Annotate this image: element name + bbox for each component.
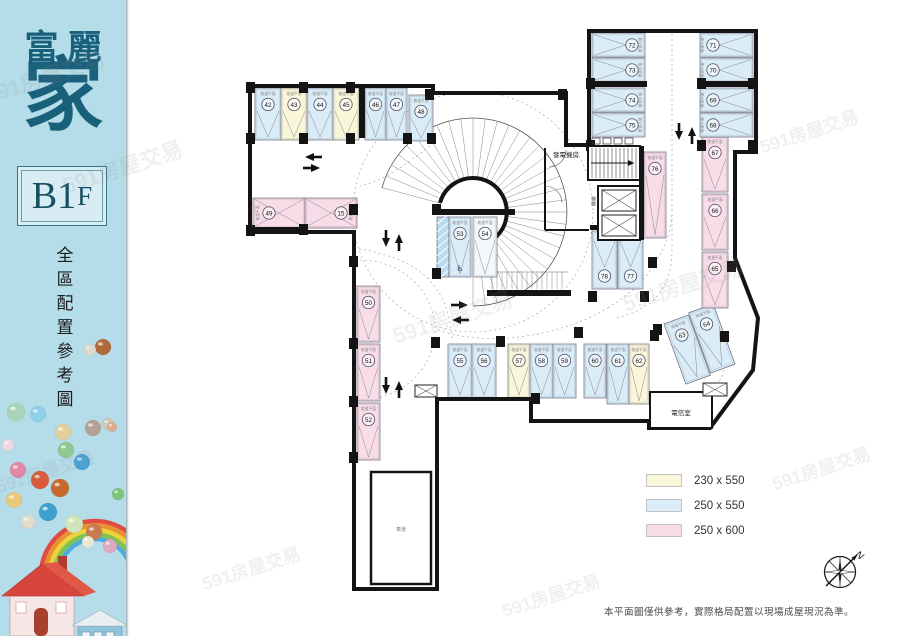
- svg-text:坡道平面: 坡道平面: [557, 347, 572, 352]
- svg-text:坡道平面: 坡道平面: [389, 91, 404, 96]
- svg-text:坡道平面: 坡道平面: [452, 347, 467, 352]
- svg-text:61: 61: [614, 358, 622, 365]
- svg-text:坡道平面: 坡道平面: [361, 347, 376, 352]
- legend-row: 230 x 550: [646, 474, 745, 487]
- svg-text:77: 77: [627, 273, 635, 280]
- svg-text:坡道平面: 坡道平面: [647, 155, 662, 160]
- parking-stall-51: 坡道平面51: [357, 344, 380, 401]
- svg-text:60: 60: [591, 358, 599, 365]
- drive-arrow-u: [688, 127, 696, 144]
- svg-text:66: 66: [711, 208, 719, 215]
- drive-arrow-d: [382, 230, 390, 247]
- parking-stall-49: 49坡道平面: [253, 198, 305, 228]
- svg-text:坡道平面: 坡道平面: [631, 347, 646, 352]
- svg-text:55: 55: [456, 358, 464, 365]
- svg-text:坡道平面: 坡道平面: [638, 62, 643, 77]
- parking-stall-69: 69坡道平面: [700, 88, 754, 112]
- svg-text:56: 56: [480, 358, 488, 365]
- parking-stall-74: 74坡道平面: [592, 88, 645, 112]
- legend-row: 250 x 550: [646, 499, 745, 512]
- drive-arrow-d: [382, 377, 390, 394]
- svg-text:坡道平面: 坡道平面: [511, 347, 526, 352]
- drive-arrow-r: [303, 164, 320, 172]
- parking-stall-73: 73坡道平面: [592, 58, 645, 82]
- parking-stall-70: 70坡道平面: [700, 58, 754, 82]
- ramp-corridor-label: 車道: [396, 526, 406, 533]
- plan-caption: 全區配置參考圖: [51, 246, 76, 416]
- page: 富麗 家 B1 F 全區配置參考圖 坡道平面63坡道平面64坡道平面42坡道平面…: [0, 0, 900, 636]
- svg-text:72: 72: [628, 42, 636, 49]
- svg-text:67: 67: [711, 150, 719, 157]
- floor-number: B1: [32, 174, 76, 218]
- svg-text:48: 48: [417, 109, 425, 116]
- svg-text:44: 44: [316, 102, 324, 109]
- legend-label: 250 x 600: [694, 525, 745, 537]
- svg-text:49: 49: [265, 210, 273, 217]
- svg-text:坡道平面: 坡道平面: [452, 220, 467, 225]
- legend-swatch: [646, 499, 682, 512]
- parking-stall-56: 坡道平面56: [472, 344, 496, 398]
- svg-text:坡道平面: 坡道平面: [610, 347, 625, 352]
- svg-text:坡道平面: 坡道平面: [534, 347, 549, 352]
- svg-text:坡道平面: 坡道平面: [700, 62, 705, 77]
- svg-text:78: 78: [601, 273, 609, 280]
- parking-stall-53: 坡道平面53♿: [449, 217, 471, 277]
- svg-text:坡道平面: 坡道平面: [312, 91, 327, 96]
- svg-text:71: 71: [709, 42, 717, 49]
- drive-arrow-l: [305, 153, 322, 161]
- sidebar: 富麗 家 B1 F 全區配置參考圖: [0, 0, 126, 636]
- parking-stall-52: 坡道平面52: [357, 403, 380, 460]
- parking-stall-75: 75坡道平面: [592, 113, 645, 137]
- svg-text:75: 75: [628, 122, 636, 129]
- svg-text:坡道平面: 坡道平面: [361, 406, 376, 411]
- svg-text:坡道平面: 坡道平面: [638, 92, 643, 107]
- svg-text:68: 68: [709, 122, 717, 129]
- parking-stall-72: 72坡道平面: [592, 33, 645, 57]
- floor-badge: B1 F: [17, 166, 107, 226]
- parking-stall-44: 坡道平面44: [307, 88, 333, 140]
- svg-text:45: 45: [342, 102, 350, 109]
- parking-stall-58: 坡道平面58: [530, 344, 553, 398]
- svg-text:43: 43: [290, 102, 298, 109]
- legend-label: 250 x 550: [694, 500, 745, 512]
- svg-text:坡道平面: 坡道平面: [707, 255, 722, 260]
- parking-stall-65: 坡道平面65: [702, 252, 728, 308]
- svg-text:坡道平面: 坡道平面: [260, 91, 275, 96]
- svg-text:坡道平面: 坡道平面: [477, 220, 492, 225]
- parking-stall-50: 坡道平面50: [357, 286, 380, 342]
- parking-stall-71: 71坡道平面: [700, 33, 754, 57]
- parking-stall-60: 坡道平面60: [584, 344, 606, 398]
- parking-stall-68: 68坡道平面: [700, 113, 754, 137]
- brand-name-main: 家: [0, 52, 126, 140]
- drive-arrow-r: [451, 301, 468, 309]
- compass-north-label: N: [853, 549, 865, 563]
- svg-text:坡道平面: 坡道平面: [255, 205, 260, 220]
- svg-text:坡道平面: 坡道平面: [638, 117, 643, 132]
- drive-arrow-d: [675, 123, 683, 140]
- legend-label: 230 x 550: [694, 475, 745, 487]
- parking-stall-76: 坡道平面76: [644, 152, 666, 238]
- drive-arrow-u: [395, 234, 403, 251]
- svg-text:70: 70: [709, 67, 717, 74]
- svg-text:50: 50: [365, 300, 373, 307]
- parking-stall-47: 坡道平面47: [386, 88, 407, 140]
- drive-arrow-l: [452, 316, 469, 324]
- parking-stall-61: 坡道平面61: [607, 344, 629, 404]
- legend-row: 250 x 600: [646, 524, 745, 537]
- parking-stall-55: 坡道平面55: [448, 344, 472, 398]
- svg-text:62: 62: [635, 358, 643, 365]
- parking-stall-45: 坡道平面45: [333, 88, 359, 140]
- floor-plan: 坡道平面63坡道平面64坡道平面42坡道平面43坡道平面44坡道平面45坡道平面…: [0, 0, 900, 636]
- svg-text:65: 65: [711, 266, 719, 273]
- svg-text:51: 51: [365, 358, 373, 365]
- svg-text:坡道平面: 坡道平面: [368, 91, 383, 96]
- svg-text:坡道平面: 坡道平面: [707, 139, 722, 144]
- legend-swatch: [646, 474, 682, 487]
- legend-swatch: [646, 524, 682, 537]
- svg-text:59: 59: [561, 358, 569, 365]
- svg-text:53: 53: [456, 231, 464, 238]
- disclaimer-text: 本平面圖僅供參考，實際格局配置以現場成屋現況為準。: [604, 604, 854, 618]
- svg-text:76: 76: [651, 166, 659, 173]
- compass-icon: N: [815, 547, 865, 597]
- parking-stall-62: 坡道平面62: [629, 344, 649, 404]
- svg-text:58: 58: [538, 358, 546, 365]
- svg-text:坡道平面: 坡道平面: [361, 289, 376, 294]
- floor-suffix: F: [77, 181, 92, 212]
- parking-stall-43: 坡道平面43: [281, 88, 307, 140]
- svg-text:坡道平面: 坡道平面: [587, 347, 602, 352]
- svg-text:69: 69: [709, 97, 717, 104]
- parking-stall-42: 坡道平面42: [255, 88, 281, 140]
- generator-room-label: 發電機房: [553, 150, 579, 159]
- svg-text:42: 42: [264, 102, 272, 109]
- svg-text:54: 54: [481, 231, 489, 238]
- svg-text:57: 57: [515, 358, 523, 365]
- svg-text:47: 47: [393, 102, 401, 109]
- svg-text:坡道平面: 坡道平面: [700, 117, 705, 132]
- svg-text:坡道平面: 坡道平面: [707, 197, 722, 202]
- svg-text:坡道平面: 坡道平面: [476, 347, 491, 352]
- drive-arrow-u: [395, 381, 403, 398]
- svg-text:♿: ♿: [456, 264, 463, 273]
- svg-text:74: 74: [628, 97, 636, 104]
- slanted-stall-group: 坡道平面63坡道平面64: [663, 304, 735, 384]
- svg-text:15: 15: [337, 210, 345, 217]
- parking-stall-59: 坡道平面59: [553, 344, 576, 398]
- elevator-lobby-label: 梯廳: [590, 195, 596, 207]
- telecom-room-label: 電信室: [671, 408, 691, 417]
- parking-stall-54: 坡道平面54: [473, 217, 497, 277]
- legend: 230 x 550 250 x 550 250 x 600: [646, 474, 745, 549]
- svg-text:52: 52: [365, 417, 373, 424]
- parking-stall-66: 坡道平面66: [702, 194, 728, 250]
- svg-text:73: 73: [628, 67, 636, 74]
- svg-text:坡道平面: 坡道平面: [700, 37, 705, 52]
- parking-stall-57: 坡道平面57: [508, 344, 530, 398]
- svg-text:坡道平面: 坡道平面: [700, 92, 705, 107]
- svg-text:46: 46: [372, 102, 380, 109]
- parking-stall-46: 坡道平面46: [365, 88, 386, 140]
- svg-text:坡道平面: 坡道平面: [638, 37, 643, 52]
